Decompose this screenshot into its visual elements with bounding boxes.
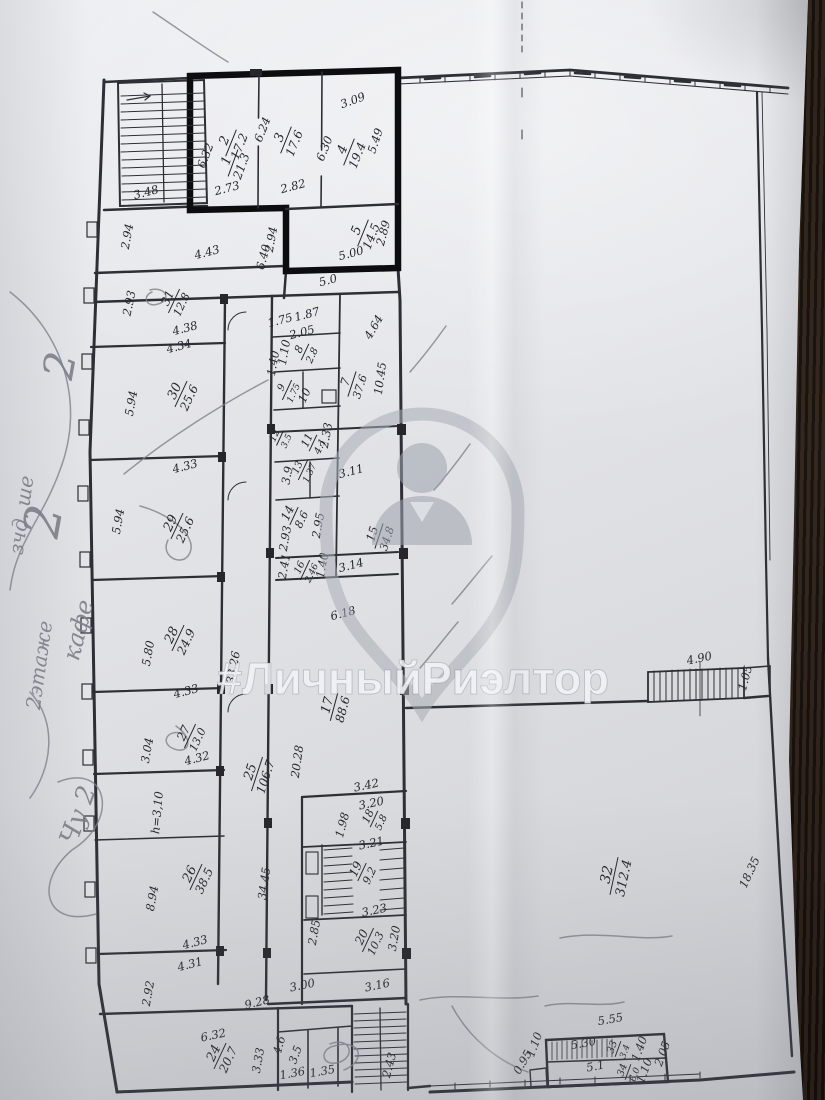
room-label: 3112.8: [156, 283, 193, 319]
handwriting-text: 2этаже: [21, 619, 57, 712]
dimension-label: 4.6: [270, 1034, 289, 1056]
svg-text:5: 5: [348, 224, 365, 237]
dimension-label: 10.45: [371, 361, 389, 396]
dimension-label: 2.94: [118, 222, 136, 251]
room-label: 2010.3: [350, 922, 387, 958]
dimension-label: 4.31: [175, 954, 204, 974]
dimension-label: 8.94: [143, 884, 161, 912]
dimension-label: h=3,10: [148, 791, 166, 835]
dimension-label: 5.00: [337, 243, 365, 263]
room-label: 199.2: [345, 857, 380, 887]
svg-text:2: 2: [216, 134, 233, 148]
staircase-bottom: [354, 1008, 407, 1090]
dimension-label: 3.16: [363, 976, 391, 995]
watermark-text: #ЛичныйРиэлтор: [217, 653, 609, 704]
room-label: 419.4: [331, 133, 370, 171]
dimension-label: 4.33: [171, 681, 200, 701]
room-label: 82.8: [289, 338, 321, 366]
dimension-label: 34.45: [255, 866, 273, 901]
svg-text:34: 34: [615, 1062, 630, 1078]
room-label: 737.6: [335, 367, 371, 401]
room-label: 2824.9: [159, 619, 198, 658]
room-label: 2925.6: [158, 507, 197, 546]
dimension-label: 1.40: [264, 349, 282, 377]
dimension-label: 4.38: [170, 318, 199, 338]
svg-text:19.4: 19.4: [346, 140, 369, 170]
dimension-label: 4.33: [180, 932, 209, 952]
dimension-label: 6.32: [194, 141, 217, 170]
dimension-label: 3.5: [286, 1044, 305, 1066]
svg-text:16: 16: [292, 559, 308, 576]
dimension-label: 2.05: [287, 322, 316, 342]
dimension-label: 18.35: [736, 854, 763, 890]
room-label: 32312.4: [595, 854, 635, 899]
dimension-label: 5.94: [109, 507, 127, 535]
floorplan-drawing: 121.3217.2317.6419.4514.53112.83025.6292…: [0, 0, 825, 1100]
dimension-label: 1.87: [293, 304, 322, 324]
svg-text:17.6: 17.6: [283, 128, 306, 158]
dimension-label: 6.30: [313, 134, 336, 163]
dimension-label: 3.33: [249, 1046, 267, 1074]
room-label: 3025.6: [162, 375, 201, 414]
dimension-label: 3.04: [138, 736, 156, 764]
realtor-watermark: #ЛичныйРиэлтор: [217, 414, 609, 710]
dimension-label: 5.94: [122, 389, 140, 417]
dimension-label: 2.94: [262, 225, 280, 254]
room-label: 317.6: [268, 121, 307, 159]
dimension-label: 2.85: [305, 918, 323, 947]
dimension-label: 2.93: [276, 524, 294, 553]
dimension-label: 3.9: [279, 465, 296, 485]
dimension-label: 2.82: [278, 176, 307, 196]
dimension-label: 4.32: [182, 748, 211, 768]
svg-text:4: 4: [334, 143, 351, 157]
dimension-label: 3.14: [337, 555, 365, 575]
room-label: 25106.7: [238, 753, 278, 796]
dimension-label: 1.35: [308, 1062, 336, 1080]
svg-text:11: 11: [298, 431, 316, 449]
dimension-label: 6.32: [199, 1026, 227, 1045]
dimension-label: 4.34: [164, 336, 193, 356]
dimension-label: 3.09: [338, 89, 367, 111]
dimension-label: 1.98: [332, 811, 352, 839]
dimension-label: 6.24: [251, 115, 274, 144]
svg-text:37.6: 37.6: [350, 373, 370, 400]
dimension-label: 20.28: [288, 744, 307, 780]
svg-text:33: 33: [605, 1039, 620, 1055]
dimension-label: 5.55: [596, 1010, 624, 1028]
dimension-label: 3.00: [288, 976, 316, 995]
dimension-label: 2.93: [119, 289, 138, 318]
room-label: 2638.5: [177, 858, 216, 897]
dimension-label: 5.49: [365, 126, 386, 155]
dimension-label: 3.20: [385, 924, 403, 952]
person-silhouette-head: [397, 443, 447, 493]
dimension-label: 2.73: [212, 178, 241, 198]
dimension-label: 2.89: [373, 219, 393, 248]
dimension-label: 4.90: [684, 649, 713, 668]
dimension-label: 5.30: [569, 1034, 597, 1052]
dimension-label: 2.41: [275, 552, 293, 581]
dimension-label: 4.64: [361, 312, 386, 342]
dimension-label: 1.36: [278, 1064, 306, 1082]
dimension-label: 4.43: [192, 242, 221, 262]
dimension-label: 3.20: [357, 794, 385, 813]
dimension-label: 2.33: [317, 421, 335, 450]
svg-text:3: 3: [271, 131, 288, 144]
dimension-label: 5.80: [139, 639, 157, 667]
photo-of-floorplan: 121.3217.2317.6419.4514.53112.83025.6292…: [0, 0, 825, 1100]
svg-text:3.5: 3.5: [280, 433, 295, 450]
dimension-label: 5.1: [585, 1058, 605, 1075]
stall-partitions: [306, 848, 404, 918]
dimension-label: 5.0: [317, 271, 338, 289]
dimension-label: 4.33: [170, 456, 199, 476]
dimension-label: 2.05: [651, 1039, 673, 1069]
dimension-and-room-labels: 121.3217.2317.6419.4514.53112.83025.6292…: [109, 89, 763, 1085]
dimension-label: 2.92: [139, 979, 157, 1008]
handwriting-text: 2: [33, 348, 86, 384]
